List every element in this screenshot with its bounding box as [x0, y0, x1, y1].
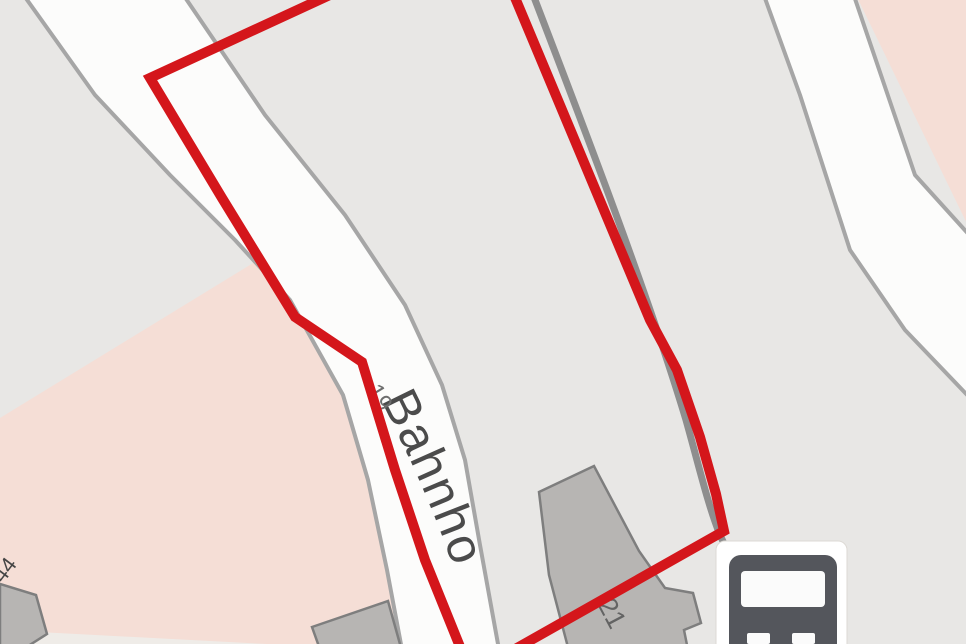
map-viewport[interactable]: Bahnho 19 21 44 — [0, 0, 966, 644]
bus-stop-icon — [716, 541, 847, 644]
bus-icon-windshield — [741, 571, 825, 607]
bus-icon-headlight-right — [792, 633, 815, 644]
bus-icon-headlight-left — [747, 633, 770, 644]
map-canvas[interactable]: Bahnho 19 21 44 — [0, 0, 966, 644]
